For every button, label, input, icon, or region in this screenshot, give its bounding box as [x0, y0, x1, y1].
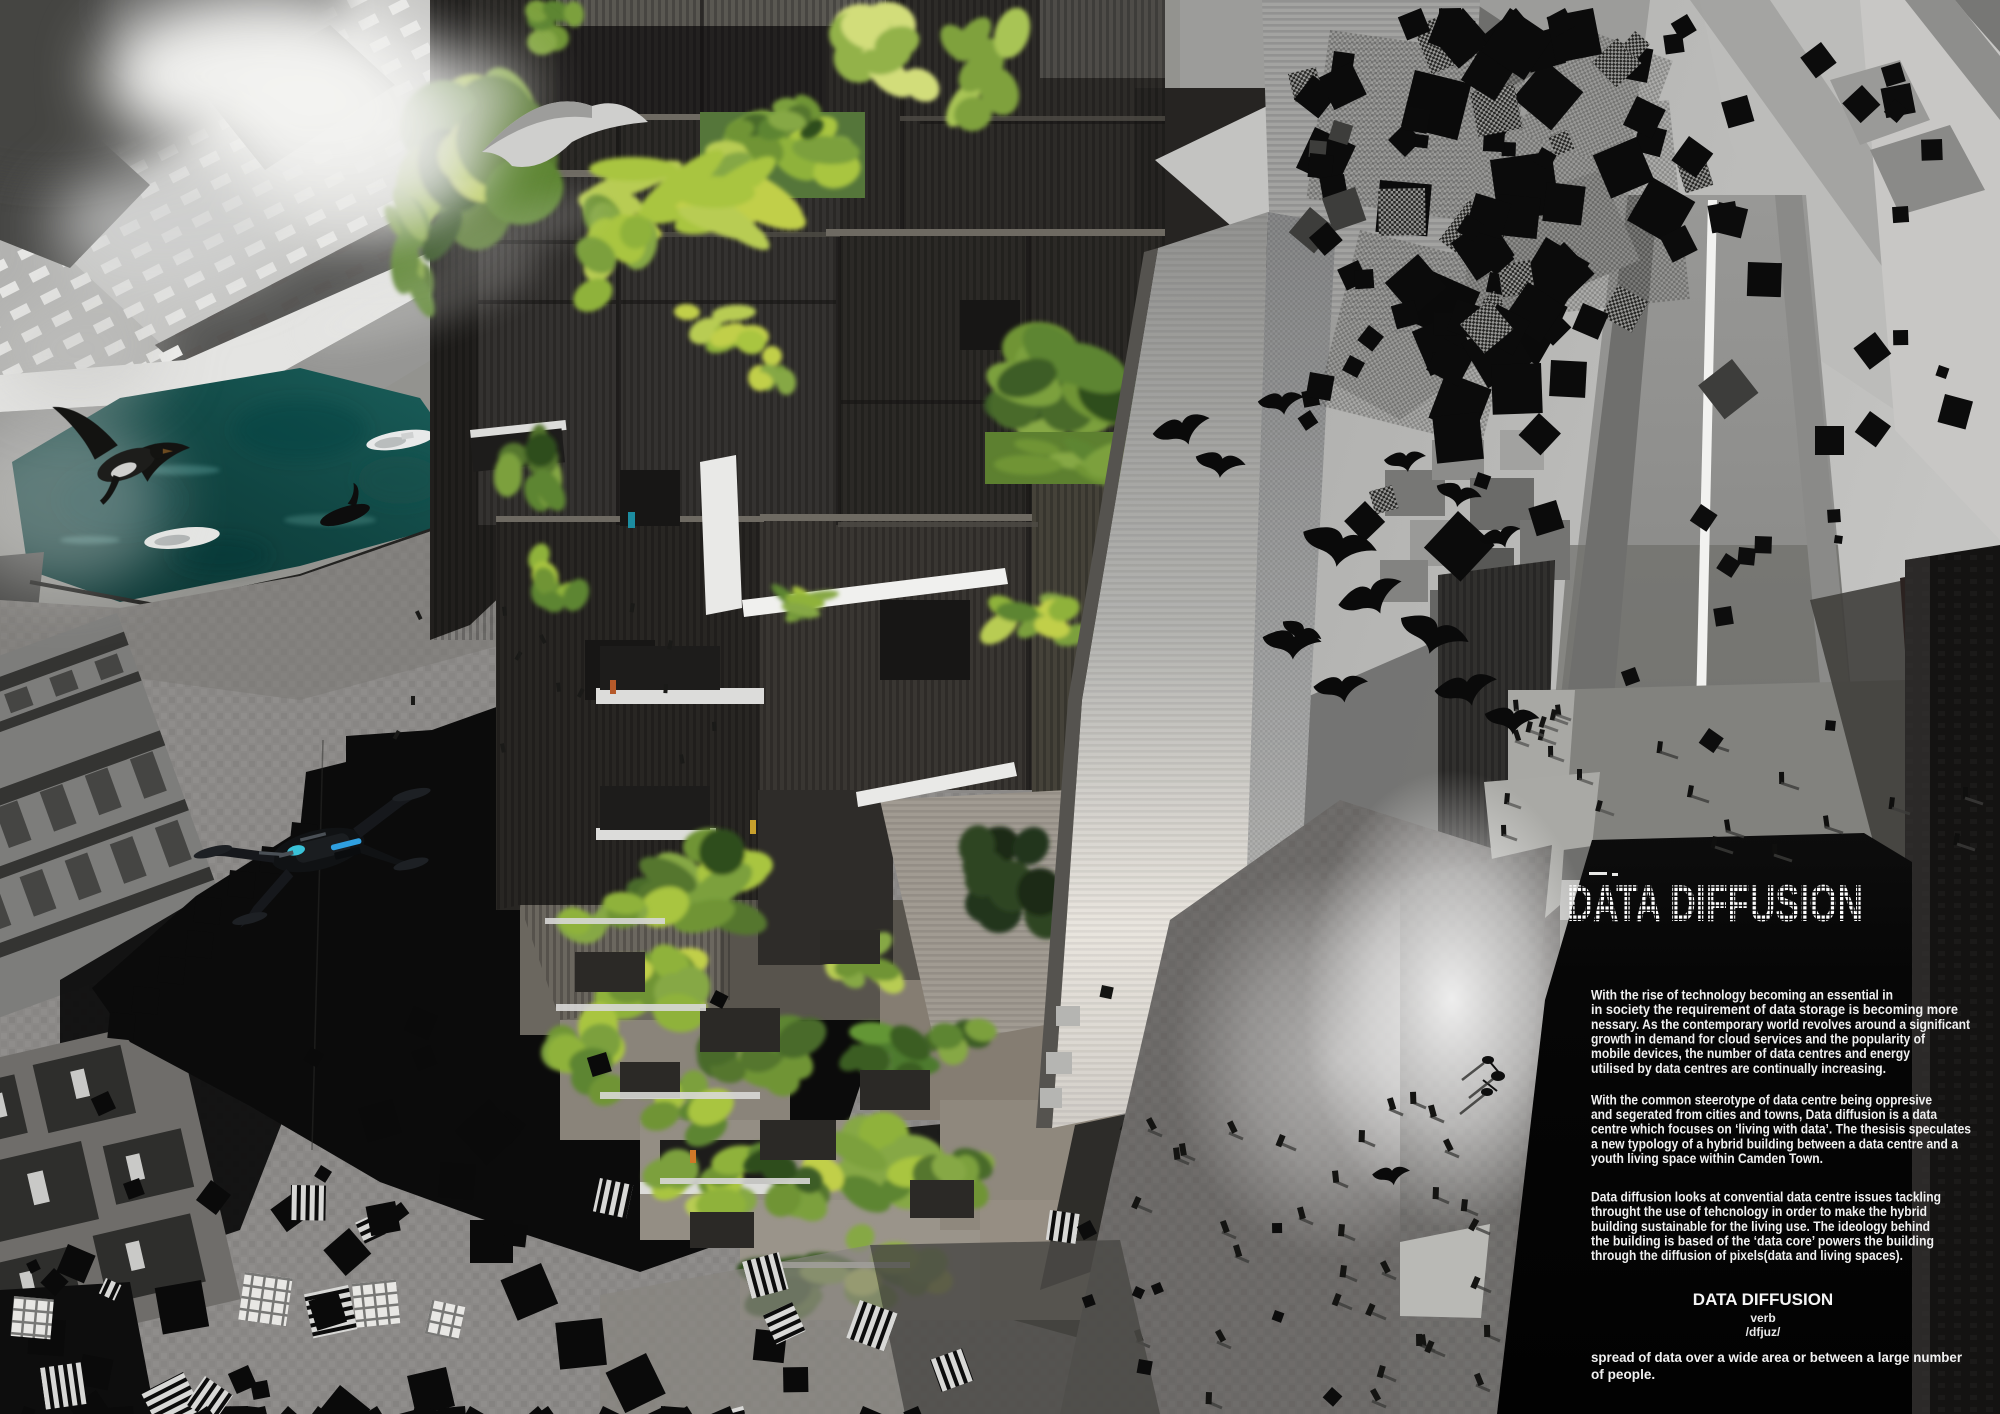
svg-text:in society the requirement of: in society the requirement of data stora… — [1591, 1002, 1958, 1017]
svg-text:With the rise of technology be: With the rise of technology becoming an … — [1591, 988, 1893, 1003]
svg-text:youth living space within Camd: youth living space within Camden Town. — [1591, 1151, 1823, 1166]
svg-text:With the common steerotype of: With the common steerotype of data centr… — [1591, 1092, 1932, 1107]
svg-text:utilised by data centres are c: utilised by data centres are continually… — [1591, 1061, 1886, 1076]
svg-text:spread of data over a wide are: spread of data over a wide area or betwe… — [1591, 1350, 1963, 1365]
svg-text:and segerated from cities and: and segerated from cities and towns, Dat… — [1591, 1107, 1937, 1122]
svg-text:growth in demand for cloud ser: growth in demand for cloud services and … — [1591, 1032, 1925, 1047]
svg-text:DATA DIFFUSION: DATA DIFFUSION — [1693, 1290, 1833, 1309]
svg-text:throught the use of tehcnology: throught the use of tehcnology in order … — [1591, 1204, 1927, 1219]
svg-text:through the diffusion of pixel: through the diffusion of pixels(data and… — [1591, 1248, 1903, 1263]
svg-text:nessary. As the contemporary: nessary. As the contemporary world revol… — [1591, 1017, 1970, 1032]
svg-text:/dfjuz/: /dfjuz/ — [1746, 1325, 1781, 1339]
svg-text:building sustainable for the l: building sustainable for the living use.… — [1591, 1219, 1930, 1234]
svg-text:the building is based of the ‘: the building is based of the ‘data core’… — [1591, 1234, 1934, 1249]
svg-text:of people.: of people. — [1591, 1367, 1655, 1382]
svg-text:DATA DIFFUSION: DATA DIFFUSION — [1567, 875, 1863, 933]
svg-text:verb: verb — [1750, 1311, 1775, 1325]
svg-text:a new typology of a hybrid bui: a new typology of a hybrid building betw… — [1591, 1136, 1958, 1151]
svg-text:mobile devices, the number of: mobile devices, the number of data centr… — [1591, 1046, 1910, 1061]
svg-text:centre which focuses on ‘livin: centre which focuses on ‘living with dat… — [1591, 1122, 1971, 1137]
svg-text:Data diffusion looks at conven: Data diffusion looks at convential data … — [1591, 1190, 1941, 1205]
